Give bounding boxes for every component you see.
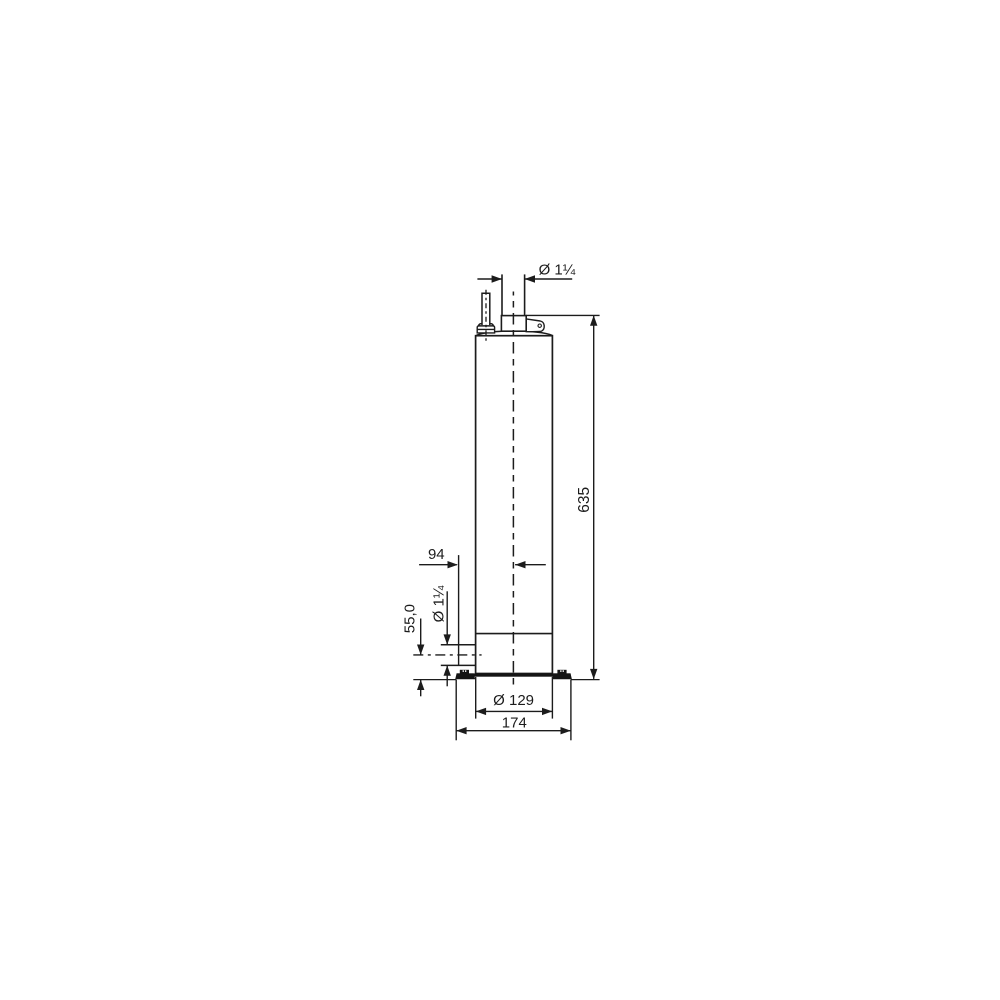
- svg-text:174: 174: [502, 715, 527, 732]
- svg-text:Ø 1¼: Ø 1¼: [431, 585, 448, 622]
- svg-text:Ø 129: Ø 129: [493, 692, 534, 709]
- svg-text:55,0: 55,0: [402, 604, 419, 633]
- svg-text:94: 94: [428, 546, 445, 563]
- svg-text:635: 635: [576, 487, 593, 513]
- svg-text:Ø 1¼: Ø 1¼: [539, 262, 576, 279]
